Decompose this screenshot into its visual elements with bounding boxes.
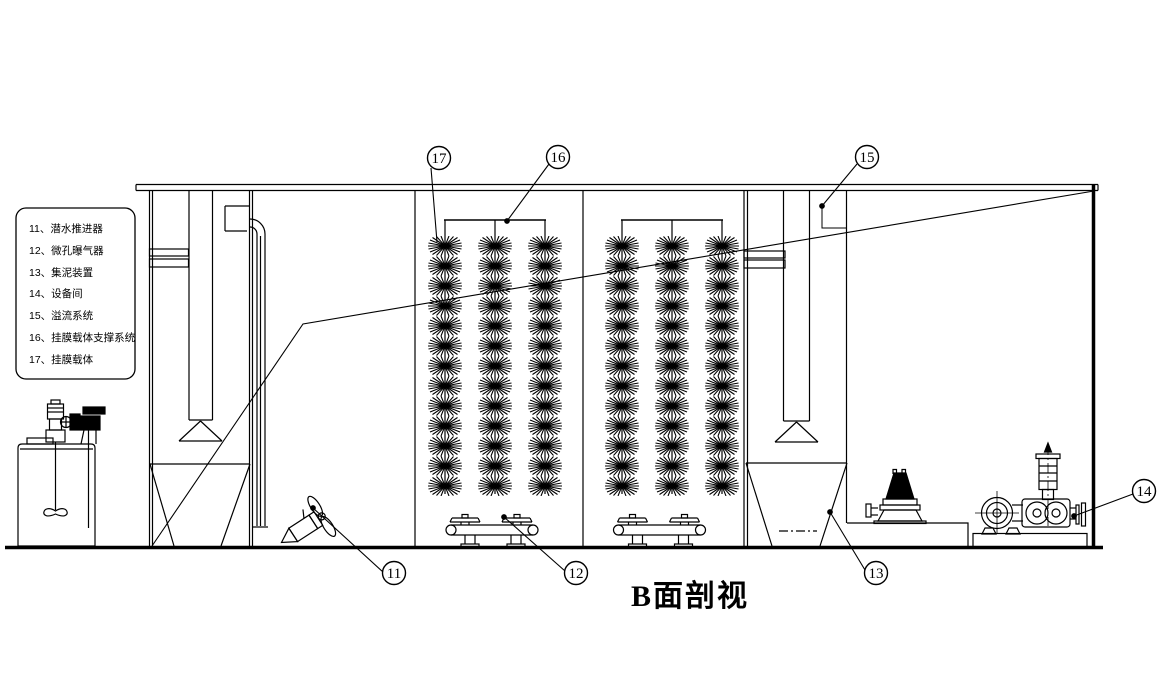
legend-item-12: 12、微孔曝气器 (29, 244, 104, 257)
carrier-unit-1 (428, 220, 562, 496)
section-view-drawing: 17 16 15 11 12 13 14 11、潜水推进器 12、微 (0, 0, 1175, 699)
callout-14: 14 (1133, 480, 1156, 503)
callout-14-label: 14 (1137, 484, 1153, 500)
callout-17-label: 17 (432, 151, 448, 167)
equipment-platform (847, 523, 968, 547)
callout-13: 13 (865, 562, 888, 585)
weir-bracket-left (150, 249, 189, 267)
overflow-duct (744, 191, 847, 443)
callout-13-label: 13 (869, 566, 884, 582)
sludge-hopper-13 (746, 463, 847, 546)
legend-item-16: 16、挂膜载体支撑系统 (29, 331, 136, 344)
legend-item-11: 11、潜水推进器 (29, 222, 103, 235)
legend-box: 11、潜水推进器 12、微孔曝气器 13、集泥装置 14、设备间 15、溢流系统… (16, 208, 136, 379)
callout-11-label: 11 (387, 566, 401, 582)
submersible-pump (866, 470, 926, 524)
callout-16: 16 (547, 146, 570, 169)
callout-15: 15 (856, 146, 879, 169)
callout-17: 17 (428, 147, 451, 170)
legend-item-17: 17、挂膜载体 (29, 353, 94, 366)
carrier-unit-2 (605, 220, 739, 496)
center-column-funnel (179, 191, 222, 442)
inlet-pipe (225, 206, 268, 527)
section-title: B面剖视 (631, 580, 749, 613)
callout-12-label: 12 (569, 566, 584, 582)
submersible-propeller (269, 494, 339, 562)
dosing-tank (18, 400, 105, 546)
callout-11: 11 (383, 562, 406, 585)
callout-15-label: 15 (860, 150, 875, 166)
roof-line (136, 185, 1098, 191)
mixer-motor (46, 400, 65, 442)
legend-item-14: 14、设备间 (29, 287, 83, 300)
legend-item-13: 13、集泥装置 (29, 266, 93, 279)
roots-blower (973, 443, 1087, 547)
dosing-pump (61, 407, 106, 528)
aerator-unit-1 (446, 515, 538, 548)
callout-16-label: 16 (551, 150, 567, 166)
legend-item-15: 15、溢流系统 (29, 309, 94, 322)
callout-12: 12 (565, 562, 588, 585)
drawing-sheet: 17 16 15 11 12 13 14 11、潜水推进器 12、微 (0, 0, 1175, 699)
aerator-unit-2 (614, 515, 706, 548)
